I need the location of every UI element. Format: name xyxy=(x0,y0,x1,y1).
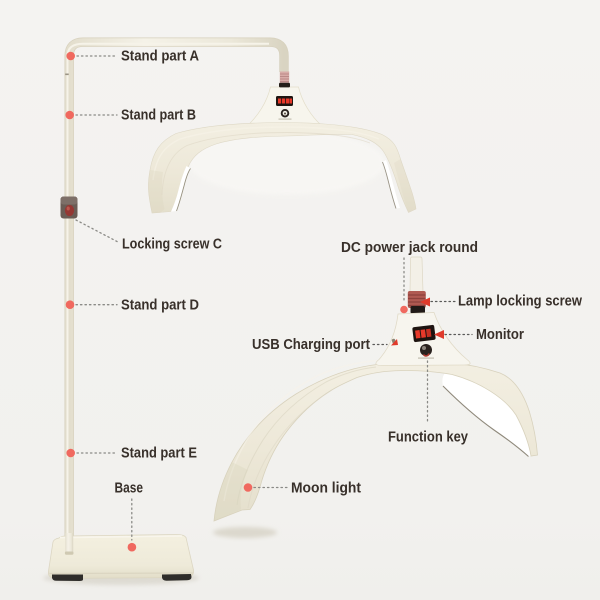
svg-text:Function key: Function key xyxy=(388,430,468,446)
svg-text:Stand part A: Stand part A xyxy=(121,49,199,65)
svg-text:Locking screw C: Locking screw C xyxy=(122,237,222,253)
svg-text:Base: Base xyxy=(115,480,144,497)
svg-text:USB Charging port: USB Charging port xyxy=(252,337,370,353)
svg-text:Stand part D: Stand part D xyxy=(121,298,199,314)
svg-text:Stand part B: Stand part B xyxy=(121,108,196,124)
svg-text:Stand part E: Stand part E xyxy=(121,446,197,462)
svg-text:Monitor: Monitor xyxy=(476,327,524,343)
svg-text:DC power jack round: DC power jack round xyxy=(341,240,478,256)
svg-text:Lamp locking screw: Lamp locking screw xyxy=(458,294,583,310)
svg-text:Moon light: Moon light xyxy=(291,481,361,497)
